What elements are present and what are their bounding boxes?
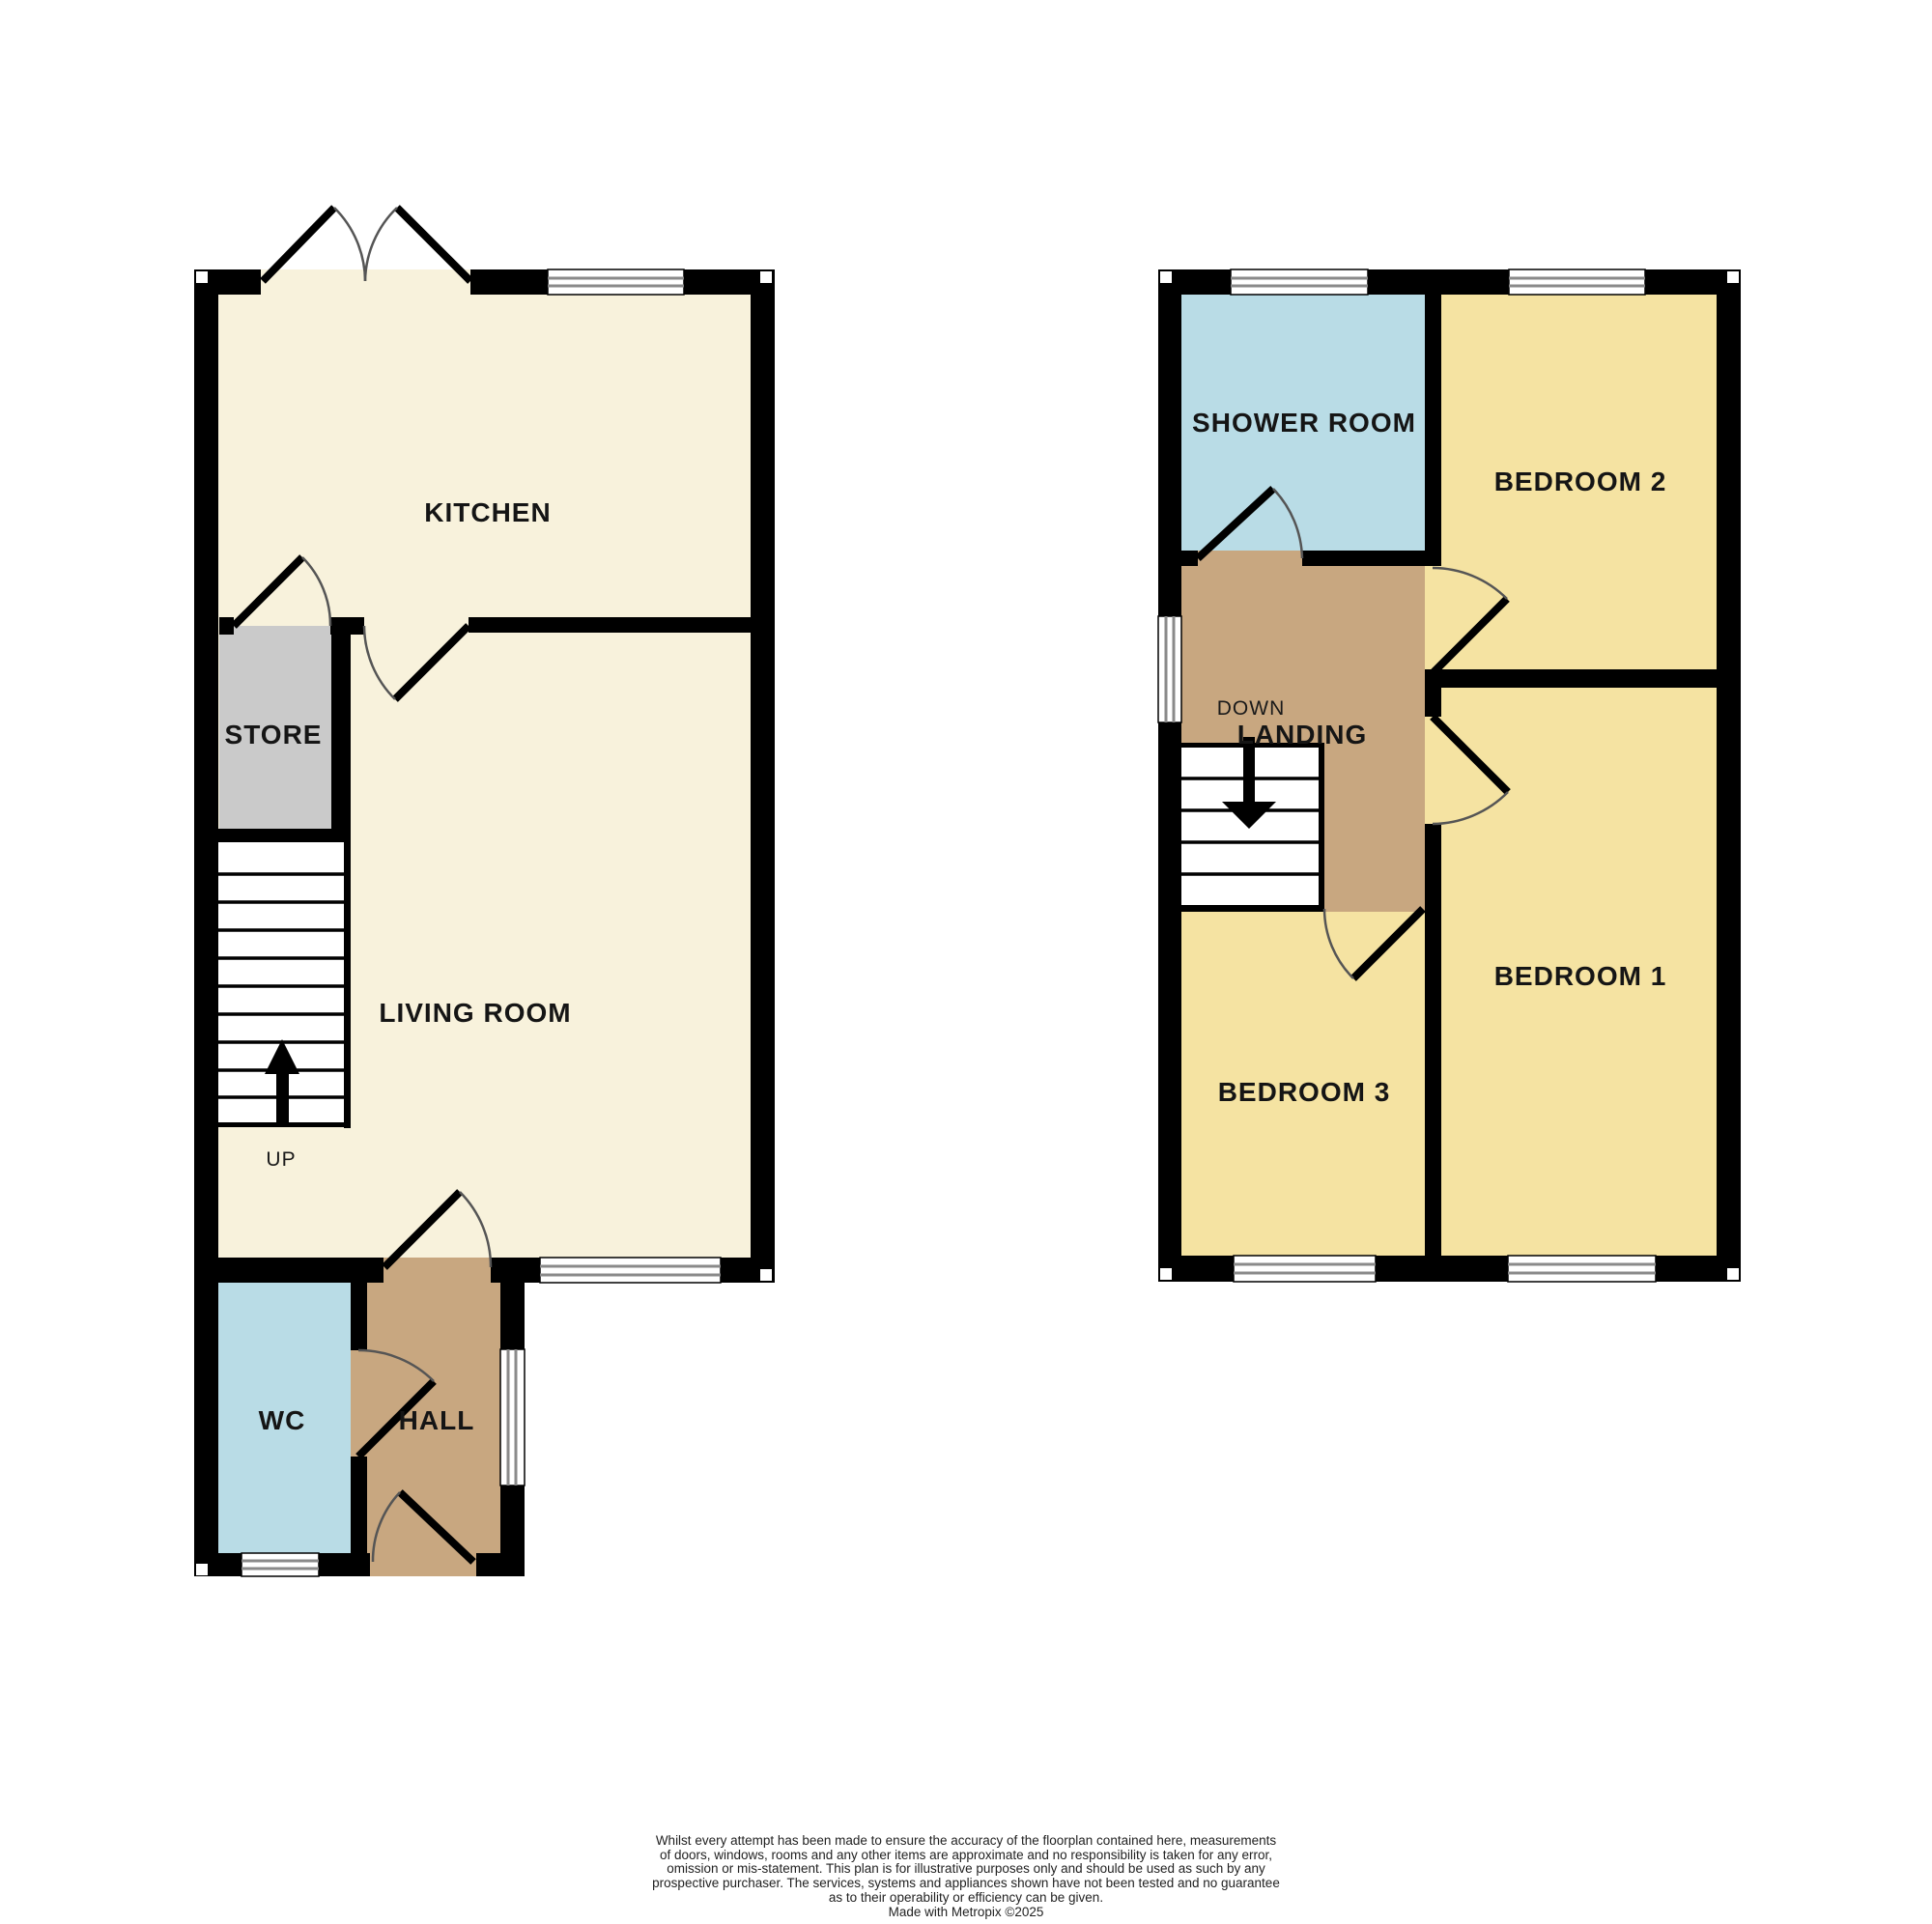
bedroom3-label: BEDROOM 3: [1218, 1077, 1391, 1107]
corner-notch: [1727, 1268, 1739, 1280]
kitchen-label: KITCHEN: [424, 497, 551, 527]
wall-segment: [1717, 269, 1741, 1282]
landing-window: [1158, 616, 1181, 722]
bedroom2-label: BEDROOM 2: [1494, 467, 1667, 496]
corner-notch: [760, 271, 772, 283]
wall-segment: [751, 269, 775, 1283]
up-label: UP: [266, 1148, 296, 1171]
wall-segment: [219, 617, 234, 635]
hall-label: HALL: [399, 1405, 475, 1435]
living-room-label: LIVING ROOM: [379, 998, 571, 1028]
store-label: STORE: [225, 720, 323, 750]
wall-segment: [1376, 1256, 1508, 1282]
disclaimer-line: as to their operability or efficiency ca…: [0, 1891, 1932, 1906]
wall-segment: [330, 617, 364, 635]
wall-segment: [1302, 551, 1427, 566]
floorplan-canvas: KITCHEN STORE LIVING ROOM WC HALL UP: [0, 0, 1932, 1924]
wall-segment: [476, 1553, 525, 1576]
kitchen-window: [548, 269, 684, 295]
wall-segment: [351, 1283, 367, 1350]
disclaimer-line: of doors, windows, rooms and any other i…: [0, 1849, 1932, 1863]
wall-segment: [1181, 551, 1198, 566]
corner-notch: [1727, 271, 1739, 283]
bedroom1-label: BEDROOM 1: [1494, 961, 1667, 991]
up-arrow-icon: [276, 1072, 289, 1125]
wall-segment: [1425, 824, 1441, 1256]
wall-segment: [469, 617, 751, 633]
wall-segment: [1425, 669, 1717, 688]
bedroom1-window: [1508, 1256, 1656, 1282]
corner-notch: [196, 271, 208, 283]
ground-floor-plan: KITCHEN STORE LIVING ROOM WC HALL UP: [194, 208, 775, 1576]
living-room-window: [540, 1258, 721, 1283]
bedroom3-window: [1234, 1256, 1376, 1282]
bedroom2-window: [1509, 269, 1645, 295]
corner-notch: [760, 1269, 772, 1281]
disclaimer-line: omission or mis-statement. This plan is …: [0, 1862, 1932, 1877]
stair-edge: [1181, 905, 1324, 912]
wall-segment: [1158, 269, 1181, 616]
wall-segment: [1158, 722, 1181, 1282]
wall-segment: [194, 829, 351, 842]
room-kitchen: [218, 269, 751, 633]
corner-notch: [1160, 1268, 1172, 1280]
corner-notch: [196, 1564, 208, 1575]
wall-segment: [194, 1258, 384, 1283]
staircase-up: [216, 842, 351, 1128]
floorplan-page: KITCHEN STORE LIVING ROOM WC HALL UP: [0, 0, 1932, 1924]
disclaimer-line: Whilst every attempt has been made to en…: [0, 1834, 1932, 1849]
stair-edge: [344, 842, 351, 1128]
wall-segment: [500, 1283, 525, 1349]
wall-segment: [491, 1258, 525, 1283]
staircase-down: [1181, 737, 1324, 912]
hall-window: [500, 1349, 525, 1485]
wall-segment: [1368, 269, 1509, 295]
wall-segment: [470, 269, 548, 295]
shower-room-label: SHOWER ROOM: [1192, 408, 1416, 438]
wall-segment: [1425, 295, 1441, 566]
wc-label: WC: [259, 1405, 306, 1435]
down-label: DOWN: [1217, 697, 1286, 720]
first-floor-plan: SHOWER ROOM BEDROOM 2 DOWN LANDING BEDRO…: [1158, 269, 1741, 1282]
wc-window: [241, 1553, 319, 1576]
stair-edge: [1319, 743, 1324, 912]
wall-segment: [194, 269, 218, 1576]
landing-label: LANDING: [1237, 720, 1368, 750]
wall-segment: [351, 1457, 367, 1553]
shower-room-window: [1231, 269, 1368, 295]
room-landing: [1322, 748, 1427, 912]
disclaimer-text: Whilst every attempt has been made to en…: [0, 1834, 1932, 1919]
metropix-credit: Made with Metropix ©2025: [0, 1906, 1932, 1920]
disclaimer-line: prospective purchaser. The services, sys…: [0, 1877, 1932, 1891]
wall-segment: [331, 635, 351, 842]
corner-notch: [1160, 271, 1172, 283]
